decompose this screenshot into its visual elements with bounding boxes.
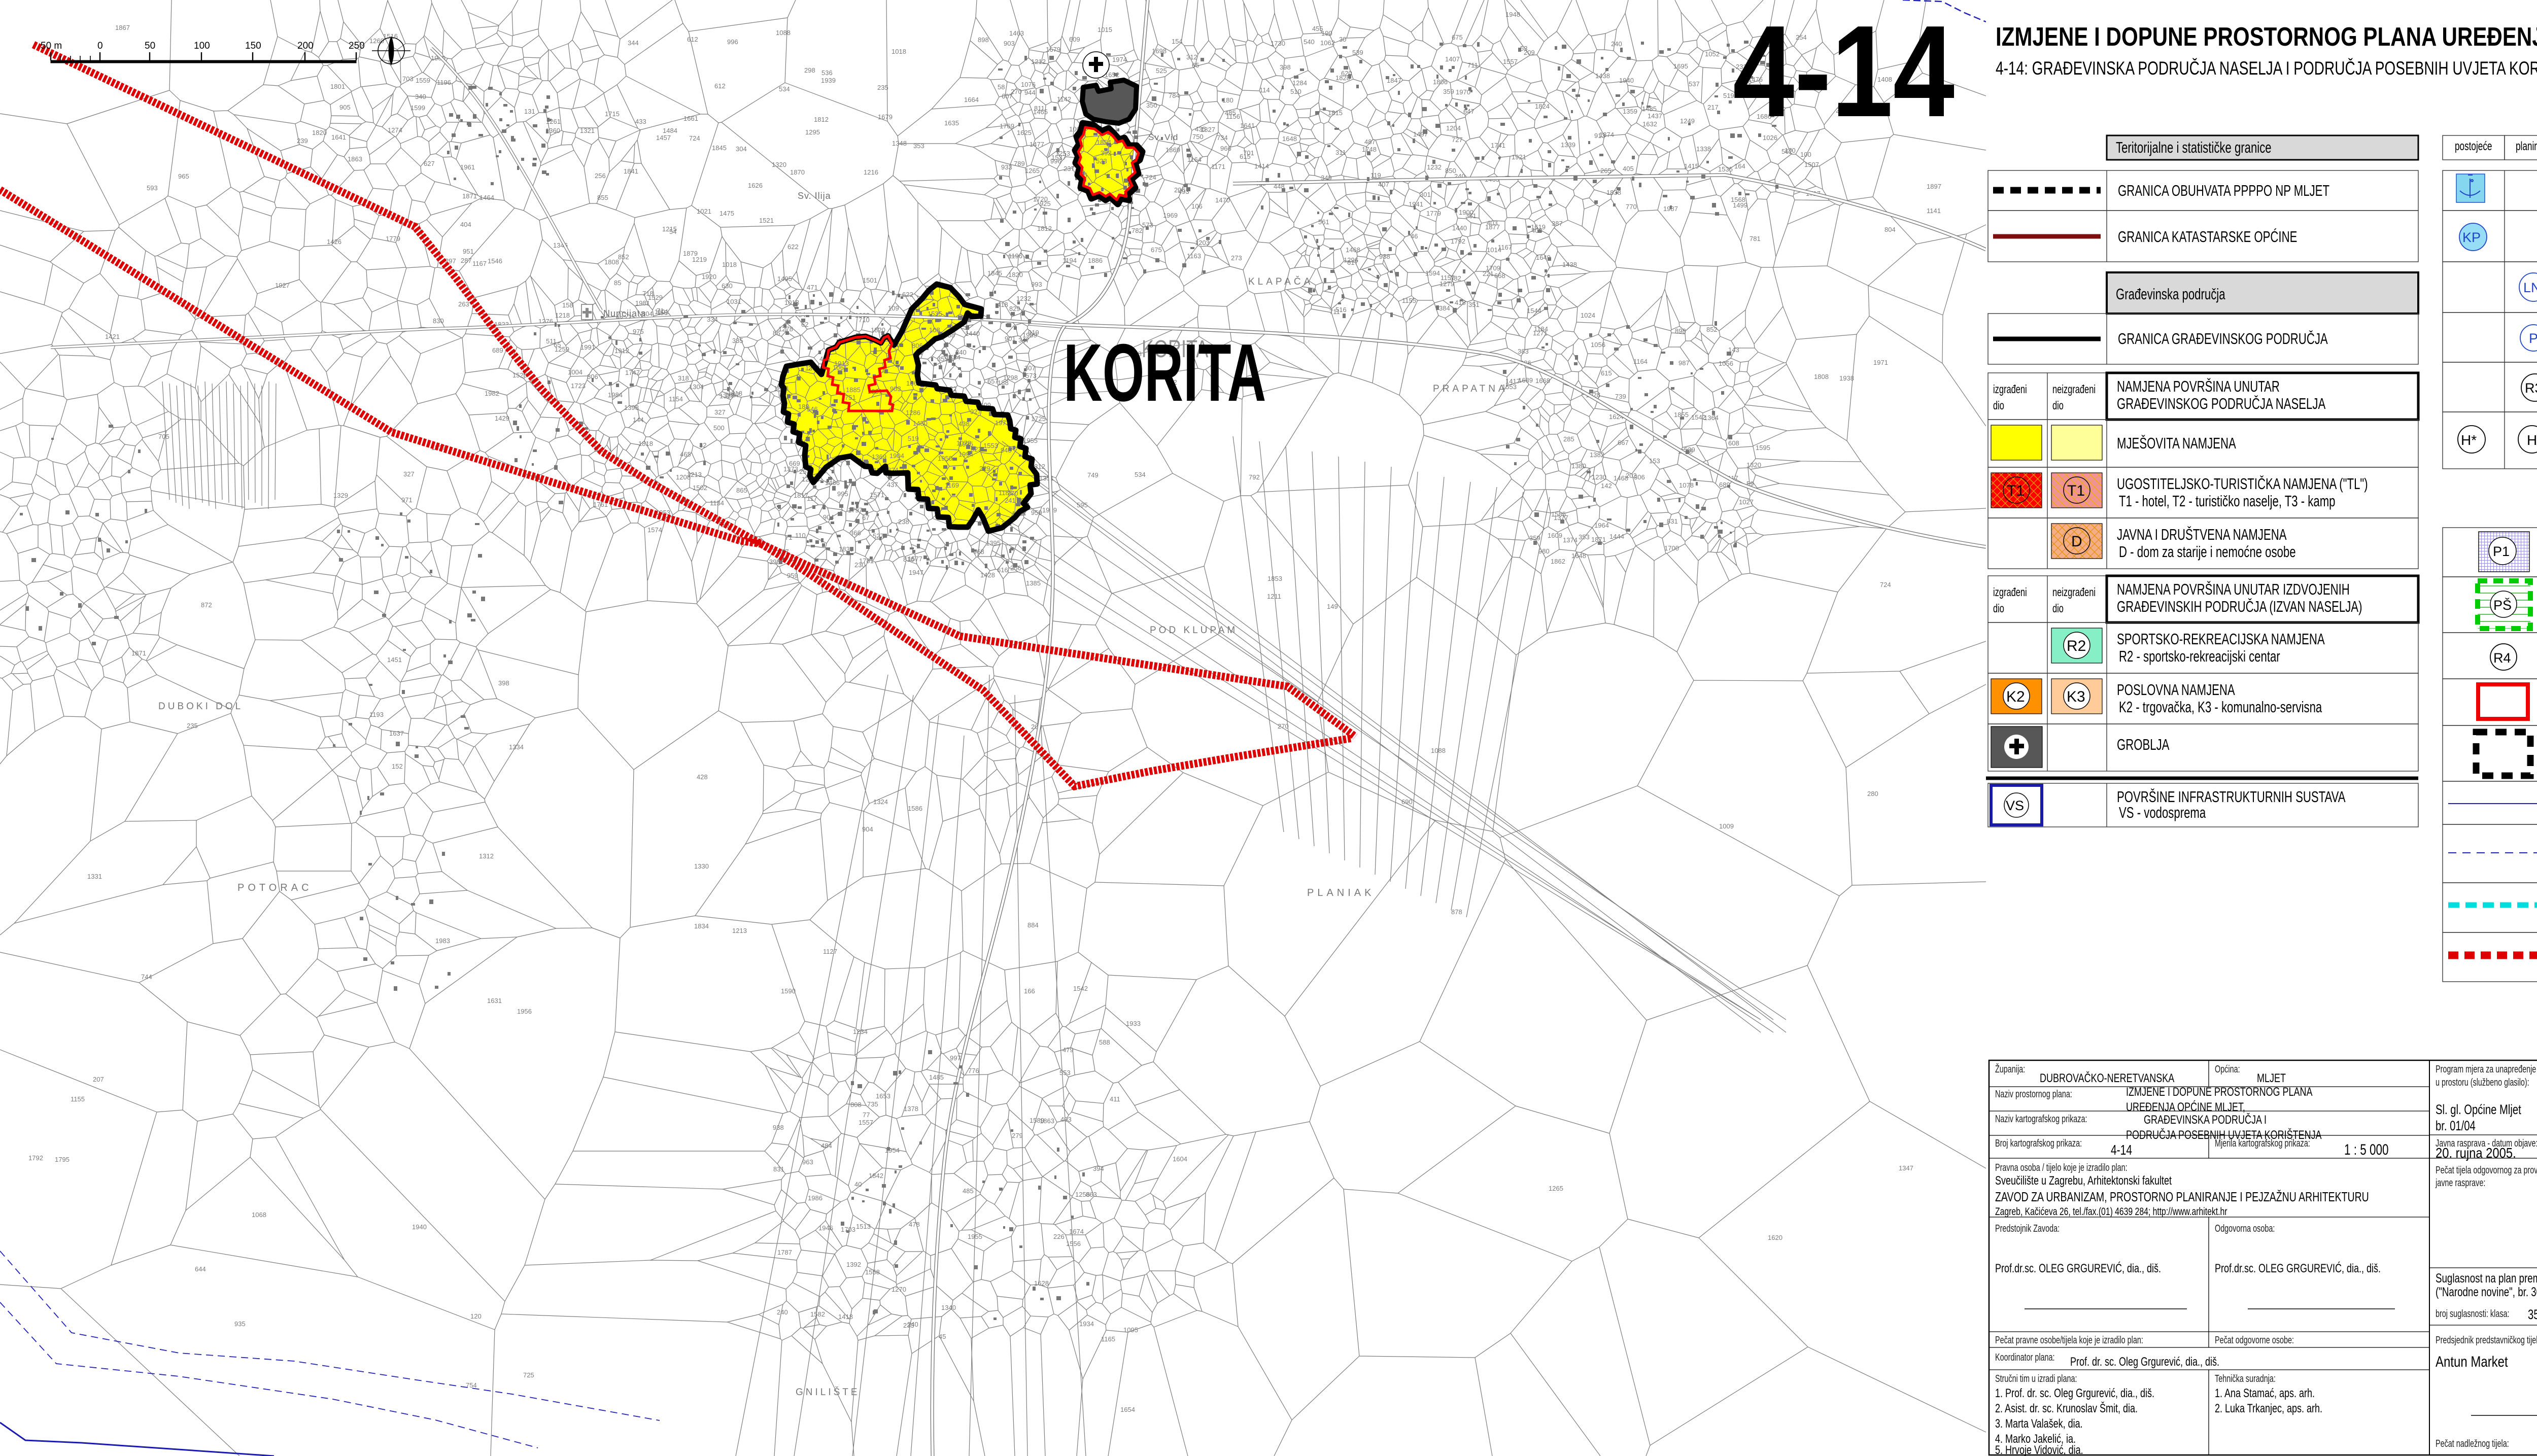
svg-text:1827: 1827	[1201, 126, 1215, 133]
svg-text:539: 539	[1352, 49, 1363, 56]
svg-text:1304: 1304	[689, 383, 704, 391]
svg-text:dio: dio	[2052, 602, 2064, 615]
svg-text:1661: 1661	[683, 115, 698, 122]
svg-text:1395: 1395	[986, 539, 1001, 547]
svg-text:119: 119	[1370, 171, 1381, 179]
svg-text:852: 852	[1706, 326, 1718, 333]
svg-text:540: 540	[1304, 38, 1315, 46]
svg-text:1582: 1582	[810, 1310, 825, 1318]
svg-text:Zagreb, Kačićeva 26, tel./fax.: Zagreb, Kačićeva 26, tel./fax.(01) 4639 …	[1995, 1205, 2227, 1218]
svg-text:1664: 1664	[964, 96, 979, 103]
svg-text:1870: 1870	[790, 168, 805, 176]
svg-text:239: 239	[297, 137, 308, 145]
svg-text:749: 749	[1087, 471, 1099, 479]
svg-text:593: 593	[147, 184, 158, 192]
svg-text:D - dom za starije i nemoćne o: D - dom za starije i nemoćne osobe	[2119, 543, 2296, 561]
svg-text:1955: 1955	[1023, 437, 1038, 444]
svg-text:1586: 1586	[908, 805, 922, 812]
svg-text:53: 53	[1520, 45, 1527, 52]
svg-text:Pečat tijela odgovornog za pro: Pečat tijela odgovornog za provođenje	[2436, 1164, 2537, 1176]
svg-text:1440: 1440	[1452, 224, 1467, 232]
svg-text:353: 353	[1579, 533, 1590, 541]
svg-text:1886: 1886	[1088, 257, 1103, 264]
svg-text:67: 67	[862, 514, 869, 522]
svg-text:1321: 1321	[580, 127, 595, 134]
svg-text:938: 938	[773, 1124, 784, 1131]
svg-text:170: 170	[1785, 147, 1796, 154]
svg-text:561: 561	[1318, 218, 1329, 226]
svg-text:1590: 1590	[781, 987, 796, 995]
svg-text:1535: 1535	[1718, 165, 1733, 173]
svg-text:784: 784	[1169, 92, 1180, 99]
svg-text:280: 280	[1867, 790, 1878, 798]
svg-text:898: 898	[1675, 327, 1686, 335]
svg-text:525: 525	[1156, 67, 1167, 75]
svg-text:GRANICA GRAĐEVINSKOG PODRUČJA: GRANICA GRAĐEVINSKOG PODRUČJA	[2118, 329, 2328, 348]
svg-text:1414: 1414	[1254, 162, 1269, 170]
svg-text:1378: 1378	[904, 1105, 918, 1113]
svg-text:534: 534	[1135, 471, 1146, 478]
svg-text:705: 705	[158, 433, 169, 440]
svg-text:DUBROVAČKO-NERETVANSKA: DUBROVAČKO-NERETVANSKA	[2040, 1070, 2175, 1085]
svg-text:4-14: GRAĐEVINSKA PODRUČJA NAS: 4-14: GRAĐEVINSKA PODRUČJA NASELJA I POD…	[1996, 57, 2537, 79]
svg-text:Naziv prostornog plana:: Naziv prostornog plana:	[1995, 1088, 2072, 1100]
svg-text:Sv. Ilija: Sv. Ilija	[798, 191, 831, 201]
svg-text:1. Prof. dr. sc. Oleg Grgurevi: 1. Prof. dr. sc. Oleg Grgurević, dia., d…	[1995, 1387, 2154, 1400]
svg-text:NAMJENA POVRŠINA UNUTAR IZDVOJ: NAMJENA POVRŠINA UNUTAR IZDVOJENIH	[2117, 580, 2350, 598]
svg-text:5. Hrvoje Vidović, dia.: 5. Hrvoje Vidović, dia.	[1995, 1444, 2083, 1456]
svg-text:1249: 1249	[1680, 117, 1695, 125]
svg-text:1521: 1521	[759, 217, 774, 224]
svg-text:1792: 1792	[1451, 237, 1465, 245]
svg-text:1330: 1330	[694, 862, 709, 870]
svg-text:311: 311	[1335, 149, 1346, 156]
svg-text:905: 905	[339, 103, 351, 111]
svg-text:1380: 1380	[1571, 462, 1586, 470]
svg-text:1438: 1438	[1562, 261, 1577, 268]
svg-text:789: 789	[1014, 160, 1025, 167]
svg-text:615: 615	[1601, 369, 1612, 377]
svg-text:903: 903	[890, 385, 901, 393]
svg-text:Antun Market: Antun Market	[2436, 1353, 2508, 1370]
svg-text:MLJET: MLJET	[2257, 1072, 2286, 1085]
svg-text:1933: 1933	[1126, 1020, 1141, 1027]
svg-text:622: 622	[787, 243, 799, 251]
svg-text:1216: 1216	[864, 168, 878, 176]
svg-text:1938: 1938	[1839, 374, 1854, 382]
svg-text:1947: 1947	[909, 569, 923, 576]
svg-text:312: 312	[1186, 53, 1197, 61]
svg-text:615: 615	[1240, 153, 1251, 160]
svg-text:85: 85	[614, 279, 621, 287]
svg-text:919: 919	[1028, 329, 1039, 336]
svg-text:1982: 1982	[485, 390, 499, 397]
svg-text:1324: 1324	[873, 798, 888, 806]
svg-text:428: 428	[697, 773, 708, 781]
svg-text:1398: 1398	[624, 404, 639, 411]
svg-text:Prof.dr.sc. OLEG GRGUREVIĆ, di: Prof.dr.sc. OLEG GRGUREVIĆ, dia., diš.	[2215, 1261, 2381, 1275]
svg-text:neizgrađeni: neizgrađeni	[2052, 383, 2096, 396]
svg-text:830: 830	[433, 317, 444, 325]
svg-text:1348: 1348	[892, 140, 907, 147]
svg-text:K2: K2	[2006, 688, 2025, 705]
svg-text:MJEŠOVITA NAMJENA: MJEŠOVITA NAMJENA	[2117, 434, 2236, 452]
svg-text:P1: P1	[2493, 544, 2510, 559]
svg-text:237: 237	[1064, 165, 1075, 172]
svg-text:2. Asist. dr. sc. Krunoslav Šm: 2. Asist. dr. sc. Krunoslav Šmit, dia.	[1995, 1401, 2138, 1415]
svg-text:200: 200	[297, 41, 314, 51]
svg-text:1415: 1415	[1684, 162, 1699, 170]
svg-text:1437: 1437	[1648, 112, 1662, 120]
svg-text:898: 898	[978, 36, 989, 44]
svg-text:500: 500	[713, 424, 725, 432]
svg-text:1164: 1164	[1633, 358, 1648, 365]
svg-text:GRAĐEVINSKOG PODRUČJA NASELJA: GRAĐEVINSKOG PODRUČJA NASELJA	[2117, 394, 2325, 412]
svg-text:980: 980	[1538, 547, 1550, 555]
svg-text:149: 149	[1327, 603, 1338, 610]
svg-text:1426: 1426	[327, 238, 341, 246]
svg-text:1155: 1155	[71, 1095, 85, 1103]
svg-text:Nuncijata: Nuncijata	[603, 308, 646, 319]
svg-text:1196: 1196	[1008, 252, 1022, 260]
svg-text:1715: 1715	[605, 110, 620, 118]
svg-text:622: 622	[902, 291, 913, 298]
svg-text:1024: 1024	[1581, 311, 1595, 319]
svg-text:735: 735	[867, 1100, 878, 1108]
svg-text:1808: 1808	[1814, 373, 1829, 380]
svg-text:Mjerila kartografskog prikaza:: Mjerila kartografskog prikaza:	[2215, 1137, 2310, 1149]
svg-text:1339: 1339	[1561, 141, 1575, 149]
svg-text:1900: 1900	[1459, 209, 1473, 216]
svg-text:1031: 1031	[727, 298, 741, 305]
svg-text:996: 996	[1050, 157, 1061, 165]
svg-text:1203: 1203	[1195, 239, 1210, 247]
svg-text:630: 630	[722, 282, 733, 290]
svg-text:744: 744	[141, 973, 152, 981]
svg-text:1795: 1795	[55, 1156, 70, 1163]
svg-text:1845: 1845	[987, 269, 1002, 277]
svg-text:1971: 1971	[1873, 359, 1888, 366]
svg-text:852: 852	[618, 253, 629, 261]
svg-text:1265: 1265	[1549, 1185, 1563, 1192]
svg-text:689: 689	[492, 346, 503, 354]
svg-text:Suglasnost na plan prema člank: Suglasnost na plan prema članku 24. Zako…	[2436, 1271, 2537, 1285]
svg-text:1620: 1620	[1768, 1234, 1782, 1241]
svg-text:340: 340	[415, 93, 426, 100]
svg-text:1056: 1056	[1591, 341, 1605, 349]
svg-text:298: 298	[804, 66, 815, 74]
svg-text:609: 609	[1069, 36, 1080, 43]
svg-text:Građevinska područja: Građevinska područja	[2116, 285, 2225, 303]
svg-text:627: 627	[424, 160, 435, 167]
svg-text:106: 106	[1191, 202, 1203, 210]
svg-text:1501: 1501	[863, 276, 877, 284]
svg-text:1274: 1274	[388, 126, 402, 134]
svg-text:R2: R2	[2067, 638, 2086, 654]
svg-text:1232: 1232	[1016, 295, 1031, 302]
svg-text:1018: 1018	[892, 48, 906, 55]
svg-text:485: 485	[963, 1187, 974, 1195]
svg-text:968: 968	[973, 548, 984, 556]
svg-text:Šv. Vid: Šv. Vid	[1148, 132, 1178, 142]
svg-text:("Narodne novine", br. 30/94,: ("Narodne novine", br. 30/94, 68/98, 61/…	[2436, 1285, 2537, 1299]
svg-text:1009: 1009	[1719, 822, 1734, 830]
svg-text:30: 30	[1339, 36, 1346, 43]
svg-text:1974: 1974	[1112, 56, 1127, 63]
svg-text:233: 233	[903, 1322, 914, 1329]
svg-text:465: 465	[680, 450, 691, 458]
svg-text:959: 959	[787, 572, 798, 579]
svg-text:GRAĐEVINSKA PODRUČJA I: GRAĐEVINSKA PODRUČJA I	[2144, 1112, 2267, 1126]
svg-text:1076: 1076	[1021, 81, 1036, 88]
svg-text:Koordinator plana:: Koordinator plana:	[1995, 1351, 2055, 1363]
svg-text:1204: 1204	[1446, 124, 1461, 132]
svg-text:110: 110	[795, 532, 806, 539]
svg-text:387: 387	[1552, 220, 1563, 227]
svg-text:235: 235	[187, 722, 198, 730]
svg-text:1885: 1885	[846, 386, 861, 394]
svg-text:144: 144	[633, 416, 644, 424]
svg-text:479: 479	[1062, 1046, 1074, 1054]
svg-text:1213: 1213	[732, 927, 747, 934]
svg-text:485: 485	[1225, 109, 1236, 117]
svg-text:1818: 1818	[638, 440, 653, 447]
svg-text:u prostoru (službeno glasilo):: u prostoru (službeno glasilo):	[2436, 1077, 2529, 1088]
svg-text:724: 724	[1880, 581, 1891, 588]
svg-text:1631: 1631	[487, 997, 502, 1004]
svg-text:1196: 1196	[437, 79, 451, 86]
svg-text:1193: 1193	[369, 711, 384, 718]
svg-text:20. rujna 2005.: 20. rujna 2005.	[2436, 1145, 2516, 1161]
svg-text:285: 285	[1563, 435, 1574, 443]
svg-text:1078: 1078	[1679, 481, 1694, 489]
svg-text:1095: 1095	[1123, 1326, 1138, 1334]
svg-text:484: 484	[821, 1142, 832, 1150]
svg-text:1877: 1877	[1485, 223, 1500, 231]
svg-text:1867: 1867	[115, 24, 130, 31]
svg-text:831: 831	[773, 1165, 784, 1173]
svg-text:1747: 1747	[625, 369, 640, 376]
svg-text:ZAVOD ZA URBANIZAM, PROSTORNO: ZAVOD ZA URBANIZAM, PROSTORNO PLANIRANJE…	[1995, 1189, 2369, 1204]
svg-text:1557: 1557	[859, 1119, 873, 1126]
svg-text:1359: 1359	[1623, 108, 1637, 115]
svg-text:270: 270	[1278, 722, 1289, 730]
svg-text:br. 01/04: br. 01/04	[2436, 1118, 2476, 1134]
svg-text:1841: 1841	[624, 167, 638, 175]
svg-text:1679: 1679	[1046, 46, 1060, 53]
svg-text:971: 971	[401, 496, 413, 504]
svg-text:1787: 1787	[777, 1249, 792, 1256]
svg-text:612: 612	[687, 36, 698, 43]
svg-text:1792: 1792	[28, 1154, 43, 1162]
svg-text:IZMJENE I DOPUNE PROSTORNOG PL: IZMJENE I DOPUNE PROSTORNOG PLANA UREĐEN…	[1996, 21, 2537, 52]
svg-text:58: 58	[998, 83, 1005, 91]
svg-text:359: 359	[1443, 88, 1454, 95]
svg-text:1871: 1871	[462, 192, 477, 200]
svg-text:1626: 1626	[748, 182, 763, 189]
svg-text:1641: 1641	[331, 133, 346, 141]
svg-text:Teritorijalne i statističke gr: Teritorijalne i statističke granice	[2116, 138, 2272, 156]
svg-text:1260: 1260	[369, 37, 384, 45]
svg-text:1571: 1571	[870, 491, 884, 499]
svg-text:318: 318	[678, 374, 689, 382]
svg-text:1927: 1927	[275, 282, 290, 289]
svg-text:T1: T1	[2067, 482, 2085, 499]
svg-text:1834: 1834	[694, 922, 709, 930]
svg-text:Sl. gl. Općine Mljet: Sl. gl. Općine Mljet	[2436, 1102, 2521, 1118]
svg-text:667: 667	[1618, 439, 1629, 446]
svg-text:GNILIŠTE: GNILIŠTE	[796, 1386, 860, 1398]
svg-text:POVRŠINE INFRASTRUKTURNIH SUST: POVRŠINE INFRASTRUKTURNIH SUSTAVA	[2117, 787, 2346, 806]
svg-text:935: 935	[234, 1320, 246, 1328]
svg-text:455: 455	[1312, 25, 1323, 32]
svg-text:dio: dio	[1993, 399, 2004, 412]
svg-text:675: 675	[1452, 33, 1463, 41]
svg-text:1340: 1340	[941, 1304, 956, 1311]
svg-text:1329: 1329	[333, 492, 348, 499]
svg-text:1475: 1475	[719, 210, 734, 217]
svg-text:50: 50	[145, 41, 155, 51]
svg-text:327: 327	[403, 470, 415, 478]
svg-text:537: 537	[1689, 80, 1700, 88]
svg-text:1577: 1577	[908, 555, 922, 563]
svg-text:158: 158	[562, 301, 573, 309]
svg-text:100: 100	[1800, 151, 1811, 158]
svg-text:1485: 1485	[929, 1073, 944, 1081]
svg-text:1286: 1286	[906, 409, 920, 417]
svg-text:1964: 1964	[1594, 522, 1609, 529]
svg-text:neizgrađeni: neizgrađeni	[2052, 586, 2096, 599]
svg-text:PŠ: PŠ	[2493, 597, 2512, 613]
svg-text:R2 - sportsko-rekreacijski cen: R2 - sportsko-rekreacijski centar	[2119, 647, 2280, 665]
svg-text:751: 751	[845, 394, 856, 401]
svg-text:1595: 1595	[1756, 444, 1770, 452]
svg-text:226: 226	[1053, 1233, 1065, 1240]
svg-text:1470: 1470	[1215, 196, 1230, 204]
svg-text:1654: 1654	[1120, 1406, 1135, 1413]
svg-text:1695: 1695	[1673, 62, 1688, 70]
svg-text:1382: 1382	[1590, 451, 1604, 459]
svg-text:669: 669	[789, 460, 800, 467]
svg-text:1141: 1141	[1927, 207, 1941, 215]
svg-text:Pečat odgovorne osobe:: Pečat odgovorne osobe:	[2215, 1334, 2294, 1346]
svg-text:DUBOKI DOL: DUBOKI DOL	[158, 701, 243, 712]
svg-text:1920: 1920	[702, 273, 716, 281]
svg-text:519: 519	[908, 435, 919, 442]
svg-text:D: D	[2071, 533, 2082, 550]
svg-text:1641: 1641	[1240, 122, 1255, 129]
svg-text:1392: 1392	[846, 1261, 861, 1268]
svg-text:1689: 1689	[1518, 376, 1533, 384]
svg-text:JAVNA I DRUŠTVENA NAMJENA: JAVNA I DRUŠTVENA NAMJENA	[2117, 525, 2287, 543]
svg-text:865: 865	[736, 487, 747, 494]
svg-text:263: 263	[458, 300, 469, 308]
svg-text:broj suglasnosti: klasa:: broj suglasnosti: klasa:	[2436, 1308, 2510, 1320]
svg-text:1709: 1709	[1486, 264, 1500, 272]
svg-text:2. Luka Trkanjec, aps. arh.: 2. Luka Trkanjec, aps. arh.	[2215, 1402, 2322, 1415]
svg-text:270: 270	[1011, 88, 1022, 95]
svg-text:1812: 1812	[814, 116, 829, 123]
svg-text:1 : 5 000: 1 : 5 000	[2344, 1141, 2389, 1158]
svg-text:403: 403	[1060, 1116, 1072, 1123]
svg-text:izgrađeni: izgrađeni	[1993, 383, 2027, 396]
svg-text:153: 153	[1649, 457, 1660, 465]
svg-text:350-01/06-01/93: 350-01/06-01/93	[2528, 1307, 2537, 1323]
svg-text:Pečat nadležnog tijela:: Pečat nadležnog tijela:	[2436, 1438, 2509, 1449]
svg-text:1480: 1480	[913, 420, 928, 427]
svg-text:770: 770	[1626, 203, 1637, 211]
svg-text:1604: 1604	[1173, 1155, 1187, 1163]
svg-text:1154: 1154	[669, 395, 683, 403]
svg-text:863: 863	[1086, 1191, 1097, 1198]
svg-text:405: 405	[1623, 165, 1634, 172]
svg-text:1004: 1004	[568, 368, 582, 376]
svg-text:725: 725	[523, 1371, 534, 1379]
svg-text:711: 711	[1467, 61, 1478, 69]
svg-text:1185: 1185	[999, 489, 1013, 497]
svg-text:1542: 1542	[1073, 985, 1088, 992]
svg-text:1163: 1163	[1187, 252, 1201, 260]
svg-text:1741: 1741	[1491, 142, 1505, 149]
svg-text:829: 829	[1009, 305, 1020, 313]
svg-text:131: 131	[524, 108, 535, 115]
svg-text:1609: 1609	[1548, 532, 1562, 539]
svg-text:938: 938	[1379, 253, 1390, 260]
svg-text:913: 913	[1594, 132, 1605, 140]
svg-text:1232: 1232	[1427, 163, 1442, 171]
svg-text:996: 996	[727, 38, 738, 46]
svg-text:planirano: planirano	[2516, 140, 2537, 153]
svg-text:1635: 1635	[944, 119, 959, 127]
svg-text:808: 808	[850, 1101, 862, 1108]
svg-text:1477: 1477	[1030, 141, 1044, 148]
svg-text:dio: dio	[2052, 399, 2064, 412]
svg-text:384: 384	[1439, 304, 1450, 312]
svg-text:1820: 1820	[1008, 271, 1023, 279]
svg-text:739: 739	[1615, 393, 1626, 400]
svg-text:45: 45	[939, 1333, 946, 1340]
svg-text:1451: 1451	[387, 656, 402, 664]
svg-text:878: 878	[1451, 908, 1462, 916]
svg-text:1347: 1347	[1899, 1164, 1913, 1172]
svg-text:306: 306	[1634, 473, 1645, 481]
svg-text:523: 523	[1096, 157, 1107, 165]
svg-text:1815: 1815	[1328, 109, 1343, 117]
svg-text:398: 398	[1280, 63, 1291, 71]
svg-text:1648: 1648	[1571, 552, 1586, 560]
svg-text:1648: 1648	[1282, 135, 1297, 143]
svg-text:1468: 1468	[1614, 474, 1628, 482]
svg-text:995: 995	[837, 490, 848, 498]
svg-text:256: 256	[595, 172, 606, 180]
svg-text:1871: 1871	[131, 649, 146, 657]
svg-text:1557: 1557	[1503, 58, 1518, 65]
svg-text:1259: 1259	[555, 345, 569, 353]
svg-text:65: 65	[1192, 61, 1199, 69]
svg-text:1279: 1279	[1439, 280, 1454, 288]
svg-text:1320: 1320	[1746, 461, 1761, 469]
svg-text:478: 478	[909, 1221, 920, 1228]
svg-text:1950: 1950	[938, 455, 952, 462]
svg-text:1589: 1589	[1030, 1117, 1044, 1124]
svg-text:1015: 1015	[1098, 26, 1112, 33]
svg-text:1879: 1879	[683, 250, 698, 257]
svg-text:1986: 1986	[808, 1194, 822, 1202]
svg-text:776: 776	[968, 1067, 979, 1074]
svg-text:727: 727	[1452, 136, 1463, 144]
svg-text:1542: 1542	[1691, 413, 1706, 421]
svg-text:207: 207	[93, 1076, 104, 1083]
